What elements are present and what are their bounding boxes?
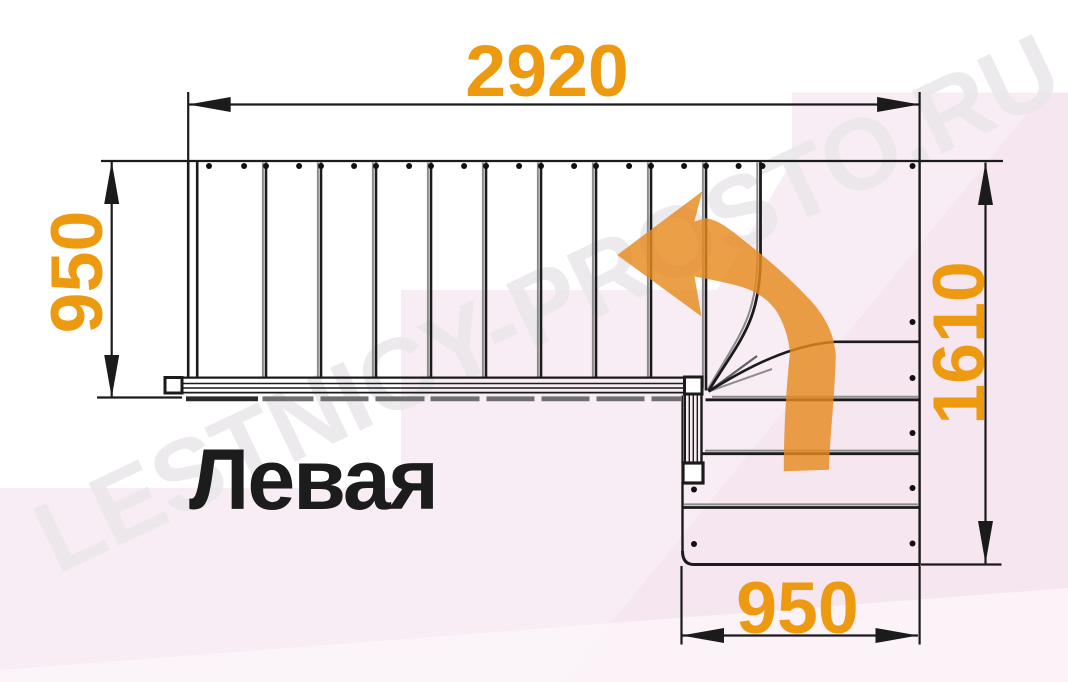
svg-text:2920: 2920 [465,29,629,112]
svg-text:950: 950 [736,566,859,649]
svg-text:1610: 1610 [917,261,1000,425]
svg-text:Левая: Левая [189,432,437,528]
svg-text:950: 950 [35,211,118,334]
